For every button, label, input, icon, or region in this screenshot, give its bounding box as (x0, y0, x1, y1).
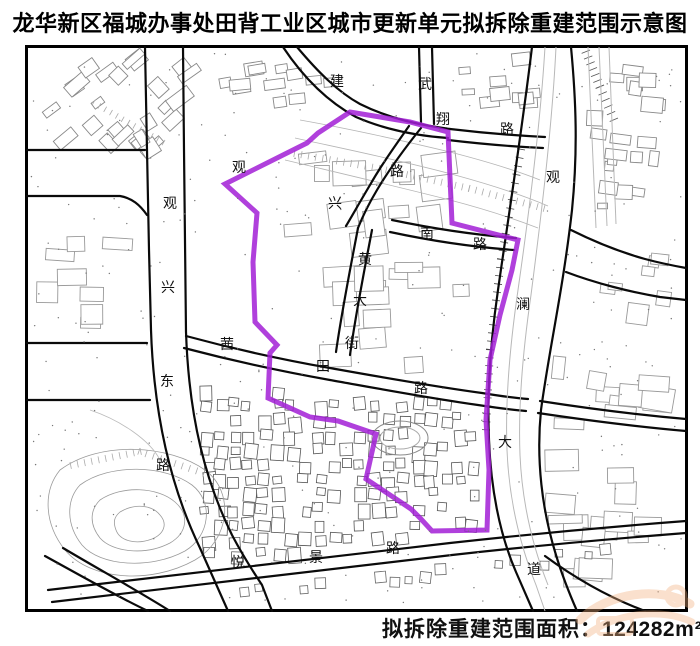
road-label-char: 建 (330, 73, 344, 89)
schematic-map-page: 龙华新区福城办事处田背工业区城市更新单元拟拆除重建范围示意图 (0, 0, 700, 646)
road-label-char: 翔 (436, 111, 450, 127)
road-label-char: 大 (353, 292, 367, 308)
road-label-char: 武 (418, 76, 432, 92)
road-label-char: 街 (345, 335, 359, 351)
road-label-char: 景 (309, 549, 323, 565)
road-label-char: 田 (316, 358, 330, 374)
road-label-char: 兴 (161, 279, 175, 295)
map-svg: 建武翔路观兴路观兴东路南路黄大街茜田路观澜大道悦景路 (25, 45, 688, 612)
road-label-char: 观 (163, 195, 177, 211)
road-label-char: 路 (500, 121, 514, 137)
map-canvas: 建武翔路观兴路观兴东路南路黄大街茜田路观澜大道悦景路 (25, 45, 688, 612)
road-label-char: 路 (156, 457, 170, 473)
area-value: 124282 (602, 618, 675, 641)
road-label-char: 东 (160, 373, 174, 389)
road-label-char: 澜 (516, 296, 530, 312)
area-caption-label: 拟拆除重建范围面积： (382, 618, 602, 641)
area-caption: 拟拆除重建范围面积：124282m² (382, 613, 700, 643)
road-label-char: 观 (232, 159, 246, 175)
road-label-char: 路 (414, 380, 428, 396)
road-label-char: 道 (527, 561, 541, 577)
road-label-char: 路 (473, 236, 487, 252)
road-label-char: 路 (390, 163, 404, 179)
area-unit: m² (675, 618, 700, 641)
page-title: 龙华新区福城办事处田背工业区城市更新单元拟拆除重建范围示意图 (0, 6, 700, 38)
road-label-char: 茜 (220, 336, 234, 352)
road-label-char: 悦 (231, 554, 245, 570)
road-label-char: 路 (386, 540, 400, 556)
road-label-char: 大 (498, 434, 512, 450)
road-label-char: 黄 (358, 251, 372, 267)
road-label-char: 兴 (328, 195, 342, 211)
road-label-char: 南 (420, 225, 434, 241)
